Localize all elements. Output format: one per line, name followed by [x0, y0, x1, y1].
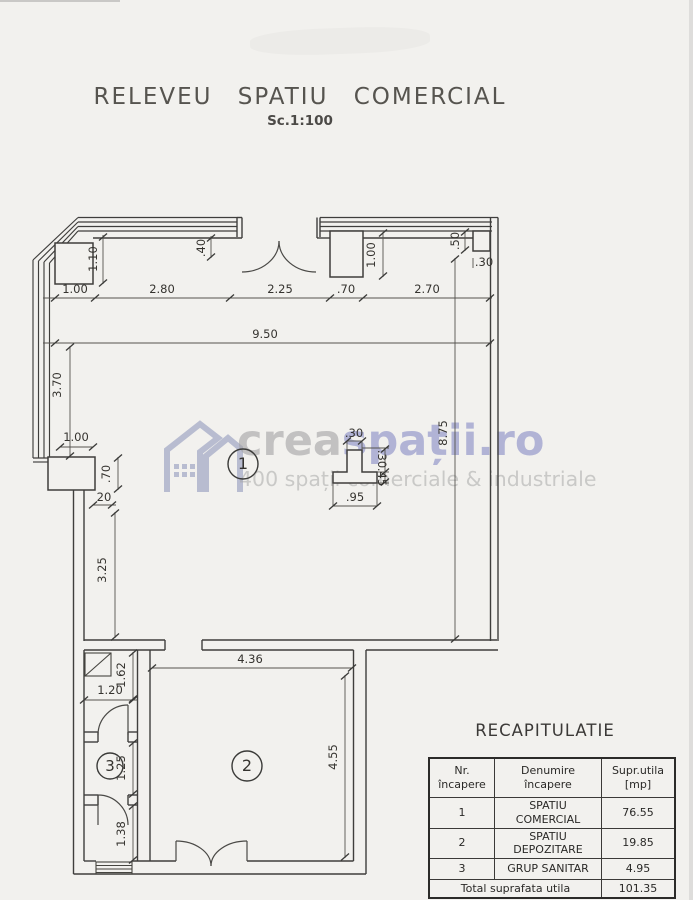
recap-header-line: [mp] — [604, 778, 672, 792]
recap-cell-nr: 2 — [429, 828, 495, 859]
dim-label: .45 — [375, 468, 389, 486]
room-number: 1 — [238, 454, 248, 473]
dim-label: 2.80 — [149, 282, 175, 296]
recap-col-header: Nr. încapere — [429, 758, 495, 798]
recap-title: RECAPITULATIE — [420, 721, 670, 740]
dim-label: 8.75 — [436, 420, 450, 446]
recap-row: 2 SPATIU DEPOZITARE 19.85 — [429, 828, 675, 859]
entrance-door-arc — [279, 241, 316, 272]
dim-label: 1.00 — [63, 430, 89, 444]
recap-header-line: Denumire încapere — [497, 764, 599, 792]
recap-cell-name: SPATIU COMERCIAL — [495, 798, 602, 829]
room-labels: 1 2 3 — [97, 449, 262, 781]
recap-cell-area: 76.55 — [602, 798, 676, 829]
dim-label: 3.25 — [95, 557, 109, 583]
room-number: 2 — [242, 756, 252, 775]
recap-cell-name: GRUP SANITAR — [495, 859, 602, 880]
recap-total-value: 101.35 — [602, 880, 676, 899]
dim-label: 2.70 — [414, 282, 440, 296]
room-number: 3 — [105, 757, 115, 775]
dim-label: .30 — [375, 450, 389, 468]
recap-row: 1 SPATIU COMERCIAL 76.55 — [429, 798, 675, 829]
recap-cell-nr: 1 — [429, 798, 495, 829]
recap-row: 3 GRUP SANITAR 4.95 — [429, 859, 675, 880]
recap-cell-name: SPATIU DEPOZITARE — [495, 828, 602, 859]
dim-label: 2.25 — [267, 282, 293, 296]
room3-door-arc — [98, 705, 128, 735]
recap-table: Nr. încapere Denumire încapere Supr.util… — [428, 757, 676, 899]
recap-header-line: Supr.utila — [604, 764, 672, 778]
room2-door-arc — [176, 841, 211, 866]
entrance-door-arc — [242, 241, 279, 272]
dim-label: 4.55 — [326, 744, 340, 770]
dim-label: 3.70 — [50, 372, 64, 398]
dim-label: 1.00 — [364, 242, 378, 268]
room3-door-arc — [98, 795, 128, 825]
recap-col-header: Denumire încapere — [495, 758, 602, 798]
dim-label: 1.20 — [97, 683, 123, 697]
dim-label: 1.10 — [86, 246, 100, 272]
dim-label: .70 — [99, 465, 113, 483]
dim-label: 9.50 — [252, 327, 278, 341]
dim-label: 4.36 — [237, 652, 263, 666]
recap-header-line: Nr. — [432, 764, 492, 778]
dim-label: .95 — [346, 490, 364, 504]
pillars — [48, 231, 490, 490]
recap-header-row: Nr. încapere Denumire încapere Supr.util… — [429, 758, 675, 798]
room2-door-arc — [211, 841, 247, 866]
t-column — [333, 450, 377, 483]
dim-label: .40 — [194, 239, 208, 257]
doors — [98, 241, 316, 866]
dim-label: 1.00 — [62, 282, 88, 296]
dim-label: 20 — [97, 490, 112, 504]
dim-label: .30 — [475, 255, 493, 269]
recap-total-row: Total suprafata utila 101.35 — [429, 880, 675, 899]
dim-label: .30 — [345, 426, 363, 440]
recap-header-line: încapere — [432, 778, 492, 792]
recap-col-header: Supr.utila [mp] — [602, 758, 676, 798]
scanned-floor-plan-page: RELEVEU SPATIU COMERCIAL Sc.1:100 creasp… — [0, 0, 693, 900]
recap-total-label: Total suprafata utila — [429, 880, 602, 899]
recap-cell-area: 19.85 — [602, 828, 676, 859]
dim-label: .50 — [448, 232, 462, 250]
dim-label: .70 — [337, 282, 355, 296]
dim-label: 1.38 — [114, 821, 128, 847]
recap-cell-area: 4.95 — [602, 859, 676, 880]
recap-cell-nr: 3 — [429, 859, 495, 880]
